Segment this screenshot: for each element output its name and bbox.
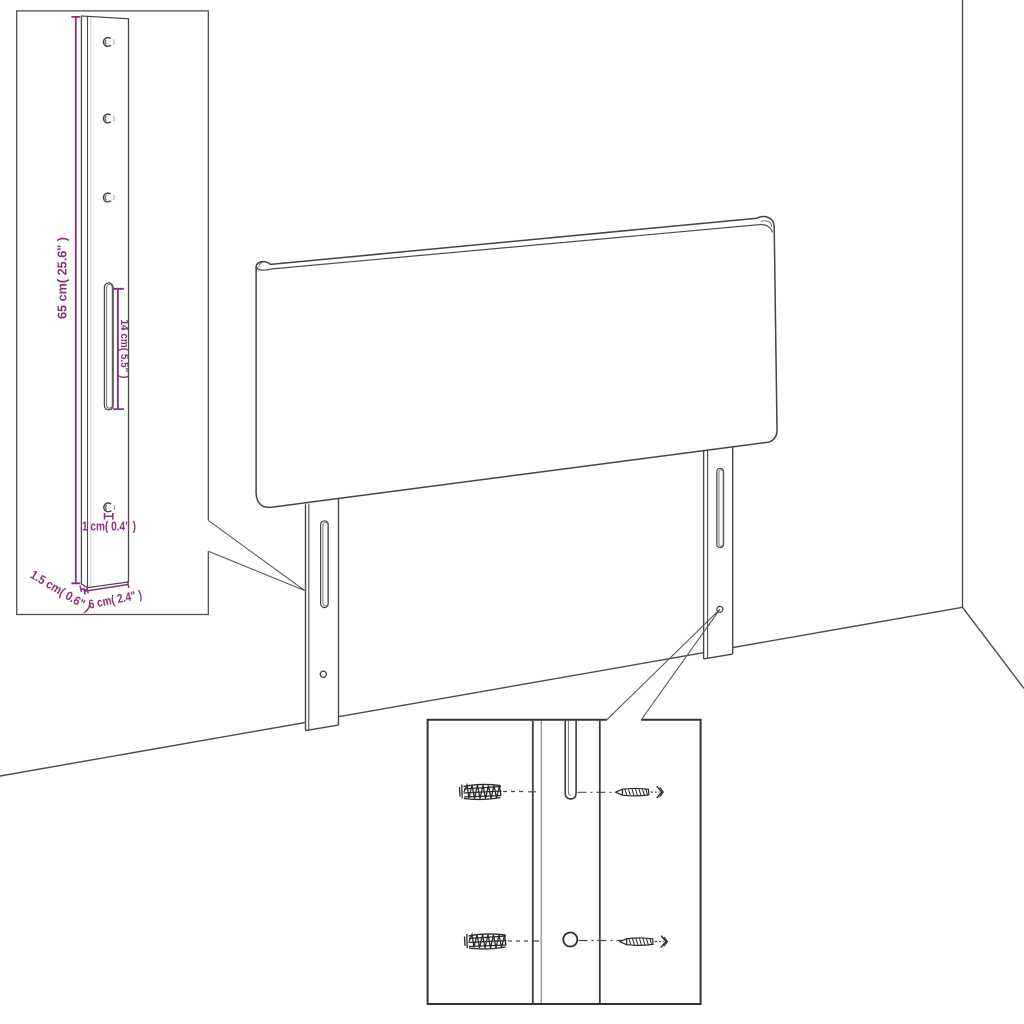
svg-text:14 cm( 5.5" ): 14 cm( 5.5" ) — [118, 320, 130, 379]
svg-text:65 cm( 25.6" ): 65 cm( 25.6" ) — [56, 237, 70, 319]
svg-text:1 cm( 0.4" ): 1 cm( 0.4" ) — [82, 520, 136, 534]
